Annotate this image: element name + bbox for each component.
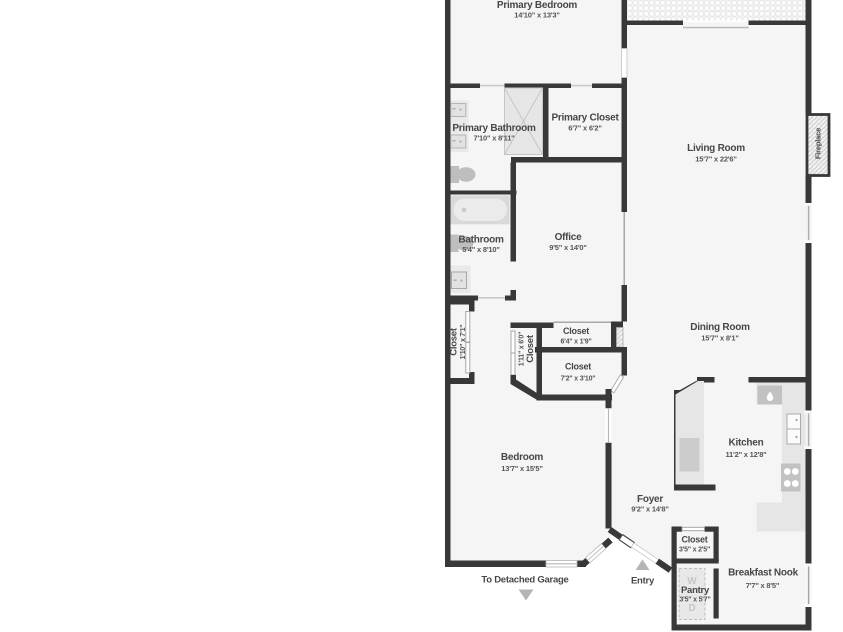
svg-text:Dining Room: Dining Room [690, 322, 750, 333]
svg-text:9'5" x 14'0": 9'5" x 14'0" [549, 243, 587, 252]
svg-text:7'2" x 3'10": 7'2" x 3'10" [561, 376, 596, 383]
svg-text:7'10" x 8'11": 7'10" x 8'11" [473, 134, 515, 143]
svg-text:5'4" x 8'10": 5'4" x 8'10" [462, 245, 500, 254]
svg-text:6'7" x 6'2": 6'7" x 6'2" [568, 124, 602, 133]
svg-text:11'2" x 12'8": 11'2" x 12'8" [725, 450, 767, 459]
svg-text:Primary Bathroom: Primary Bathroom [452, 123, 536, 134]
svg-text:1'11" x 6'0": 1'11" x 6'0" [519, 332, 526, 366]
svg-text:6'4" x 1'9": 6'4" x 1'9" [560, 339, 591, 346]
svg-text:Entry: Entry [631, 576, 655, 587]
svg-text:Primary Bedroom: Primary Bedroom [497, 0, 578, 11]
svg-text:Living Room: Living Room [687, 143, 745, 154]
svg-text:15'7" x 22'6": 15'7" x 22'6" [695, 155, 737, 164]
svg-text:Foyer: Foyer [637, 494, 663, 505]
svg-text:Fireplace: Fireplace [814, 128, 823, 159]
svg-text:15'7" x 8'1": 15'7" x 8'1" [701, 334, 739, 343]
svg-text:Pantry: Pantry [681, 585, 710, 596]
svg-text:Kitchen: Kitchen [729, 438, 764, 449]
svg-text:Closet: Closet [681, 535, 707, 545]
svg-text:9'2" x 14'8": 9'2" x 14'8" [631, 505, 669, 514]
svg-text:To Detached Garage: To Detached Garage [481, 575, 568, 586]
svg-text:Closet: Closet [563, 326, 589, 336]
svg-text:Closet: Closet [525, 334, 536, 363]
svg-text:Breakfast Nook: Breakfast Nook [728, 568, 799, 579]
svg-text:1'10" x 7'1": 1'10" x 7'1" [460, 325, 467, 360]
svg-text:13'7" x 15'5": 13'7" x 15'5" [501, 464, 543, 473]
svg-text:Bedroom: Bedroom [501, 452, 544, 463]
svg-text:Bathroom: Bathroom [458, 235, 504, 246]
svg-text:D: D [688, 603, 695, 614]
svg-text:Closet: Closet [565, 362, 591, 372]
svg-text:14'10" x 13'3": 14'10" x 13'3" [514, 11, 560, 20]
svg-text:3'5" x 2'5": 3'5" x 2'5" [679, 547, 710, 554]
svg-text:3'5" x 5'7": 3'5" x 5'7" [679, 597, 710, 604]
svg-text:Closet: Closet [449, 327, 460, 356]
svg-text:Primary Closet: Primary Closet [551, 113, 619, 124]
svg-text:7'7" x 8'5": 7'7" x 8'5" [746, 581, 780, 590]
svg-text:Office: Office [555, 232, 583, 243]
